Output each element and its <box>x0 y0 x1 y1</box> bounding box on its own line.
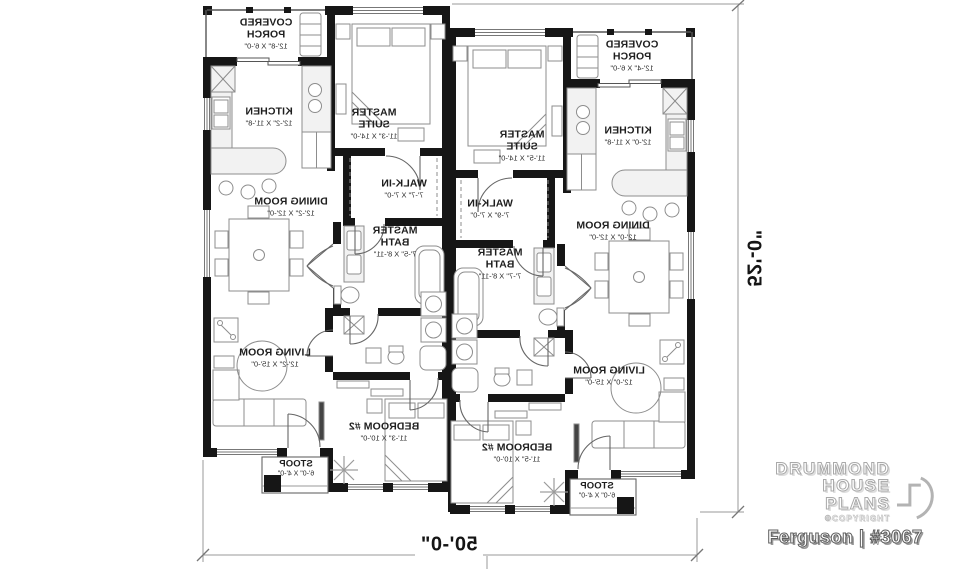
brand-name-line2: HOUSE PLANS <box>752 477 890 512</box>
overall-height-dimension: 52'-0" <box>742 229 765 286</box>
copyright-label: ©COPYRIGHT <box>752 514 890 523</box>
left-unit <box>203 6 450 493</box>
floor-plan-page: COVERED PORCH12'-8" X 6'-0" KITCHEN12'-2… <box>0 0 960 569</box>
plan-title: Ferguson | #3067 <box>752 527 938 548</box>
right-unit <box>448 28 695 515</box>
brand-block: DRUMMOND HOUSE PLANS ©COPYRIGHT Ferguson… <box>752 460 938 548</box>
brand-name-line1: DRUMMOND <box>752 460 890 477</box>
drummond-logo-icon <box>894 475 938 523</box>
overall-width-dimension: 50'-0" <box>420 534 477 557</box>
